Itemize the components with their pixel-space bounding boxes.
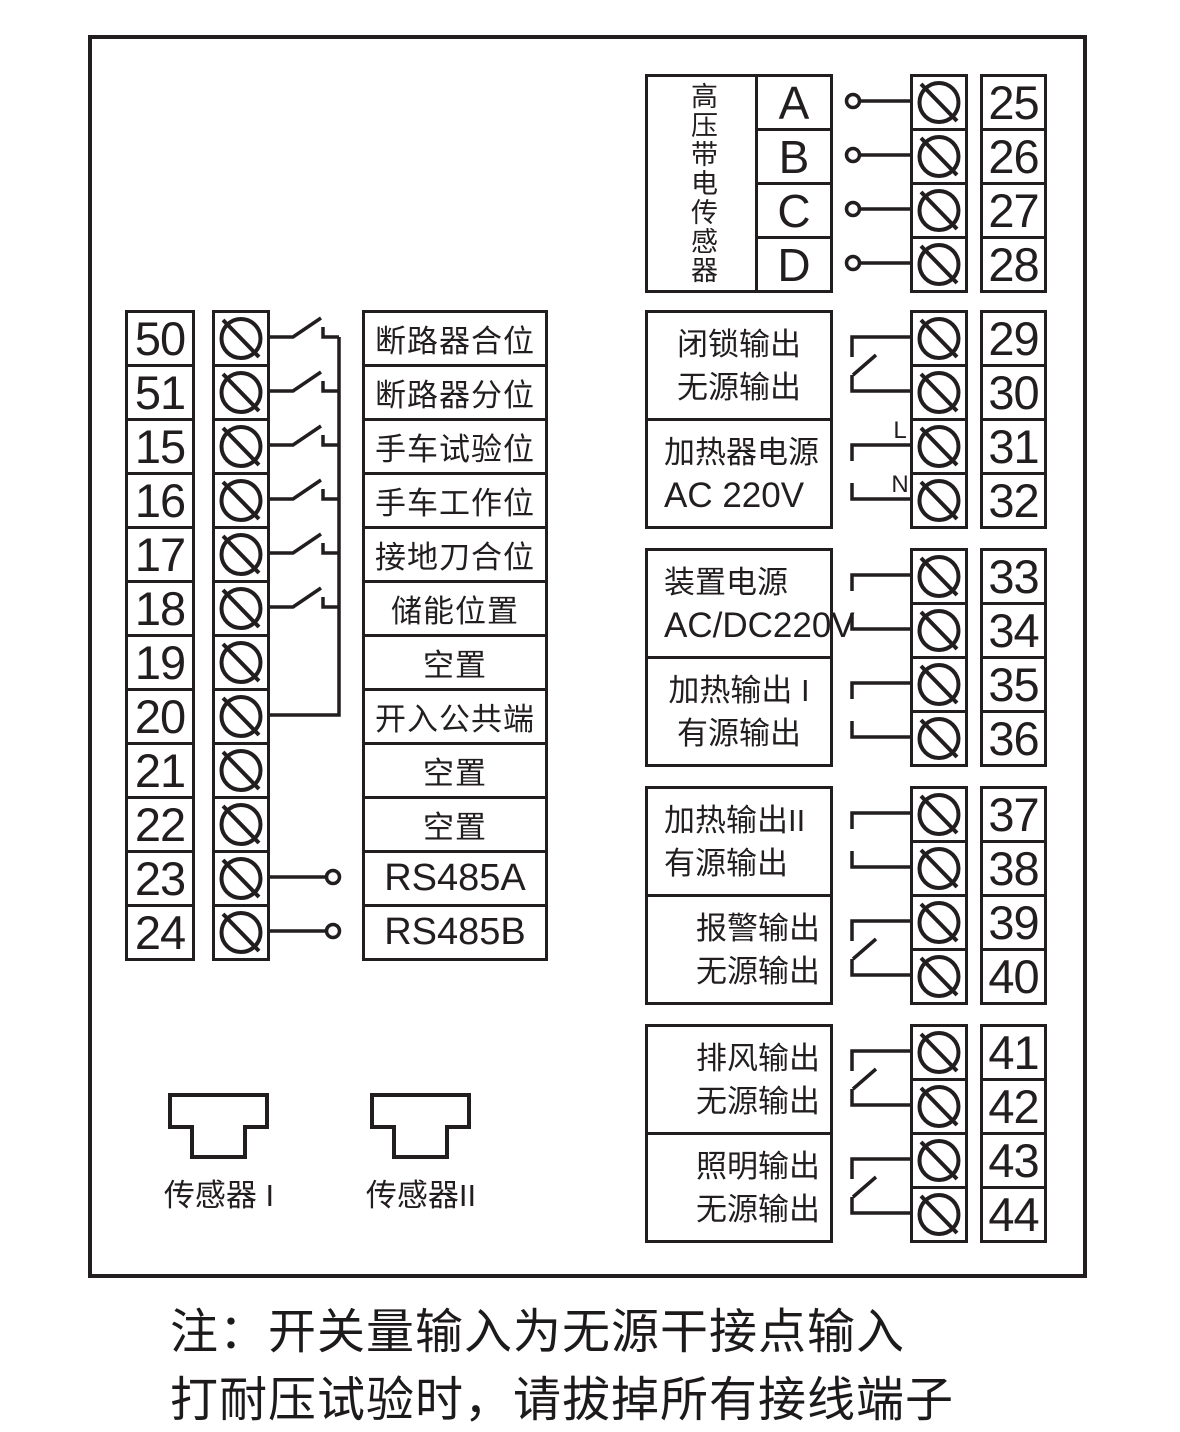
screw-terminal-icon [913,897,965,948]
terminal-number: 30 [980,364,1047,421]
right-screw-terminal-group [910,74,968,293]
screw-terminal [910,948,968,1005]
sensor2-label: 传感器II [336,1170,506,1215]
sensor1-label: 传感器 I [134,1170,304,1215]
screw-terminal-icon [913,131,965,182]
terminal-number: 29 [980,310,1047,367]
terminal-number: 36 [980,710,1047,767]
terminal-number: 33 [980,548,1047,605]
right-terminal-number-group: 33343536 [980,548,1047,767]
terminal-number: 25 [980,74,1047,131]
note-line-2: 打耐压试验时，请拔掉所有接线端子 [170,1360,954,1430]
screw-terminal-icon [913,1027,965,1078]
right-terminal-number-group: 41424344 [980,1024,1047,1243]
screw-terminal [910,786,968,843]
terminal-number: 42 [980,1078,1047,1135]
screw-terminal [910,472,968,529]
screw-terminal [910,236,968,293]
right-screw-terminal-group [910,786,968,1005]
terminal-number: 41 [980,1024,1047,1081]
screw-terminal-icon [913,551,965,602]
screw-terminal [910,894,968,951]
screw-terminal [910,418,968,475]
screw-terminal-icon [913,313,965,364]
terminal-number: 28 [980,236,1047,293]
screw-terminal [910,548,968,605]
terminal-number: 44 [980,1186,1047,1243]
screw-terminal [910,310,968,367]
screw-terminal [910,128,968,185]
screw-terminal-icon [913,843,965,894]
terminal-number: 35 [980,656,1047,713]
terminal-number: 40 [980,948,1047,1005]
screw-terminal [910,1186,968,1243]
screw-terminal-icon [913,239,965,290]
screw-terminal-icon [913,1135,965,1186]
terminal-number: 37 [980,786,1047,843]
screw-terminal-icon [913,475,965,526]
screw-terminal [910,1132,968,1189]
right-terminal-number-group: 37383940 [980,786,1047,1005]
screw-terminal-icon [913,659,965,710]
screw-terminal-icon [913,951,965,1002]
terminal-number: 32 [980,472,1047,529]
screw-terminal [910,656,968,713]
terminal-number: 27 [980,182,1047,239]
terminal-number: 39 [980,894,1047,951]
terminal-number: 43 [980,1132,1047,1189]
screw-terminal-icon [913,1081,965,1132]
screw-terminal-icon [913,1189,965,1240]
right-terminal-number-group: 25262728 [980,74,1047,293]
screw-terminal [910,710,968,767]
right-screw-terminal-group [910,1024,968,1243]
screw-terminal-icon [913,605,965,656]
screw-terminal [910,1078,968,1135]
screw-terminal [910,74,968,131]
screw-terminal-icon [913,789,965,840]
screw-terminal-icon [913,421,965,472]
screw-terminal-icon [913,713,965,764]
right-terminal-columns: 2526272829303132333435363738394041424344 [0,0,1180,1432]
screw-terminal-icon [913,185,965,236]
screw-terminal [910,602,968,659]
screw-terminal [910,364,968,421]
screw-terminal-icon [913,77,965,128]
screw-terminal [910,182,968,239]
right-screw-terminal-group [910,310,968,529]
terminal-number: 26 [980,128,1047,185]
terminal-number: 31 [980,418,1047,475]
wiring-diagram: 505115161718192021222324 断路器合位断路器分位手车试验位… [0,0,1180,1432]
right-terminal-number-group: 29303132 [980,310,1047,529]
screw-terminal-icon [913,367,965,418]
right-screw-terminal-group [910,548,968,767]
note-line-1: 注：开关量输入为无源干接点输入 [170,1292,905,1362]
screw-terminal [910,840,968,897]
terminal-number: 38 [980,840,1047,897]
screw-terminal [910,1024,968,1081]
terminal-number: 34 [980,602,1047,659]
